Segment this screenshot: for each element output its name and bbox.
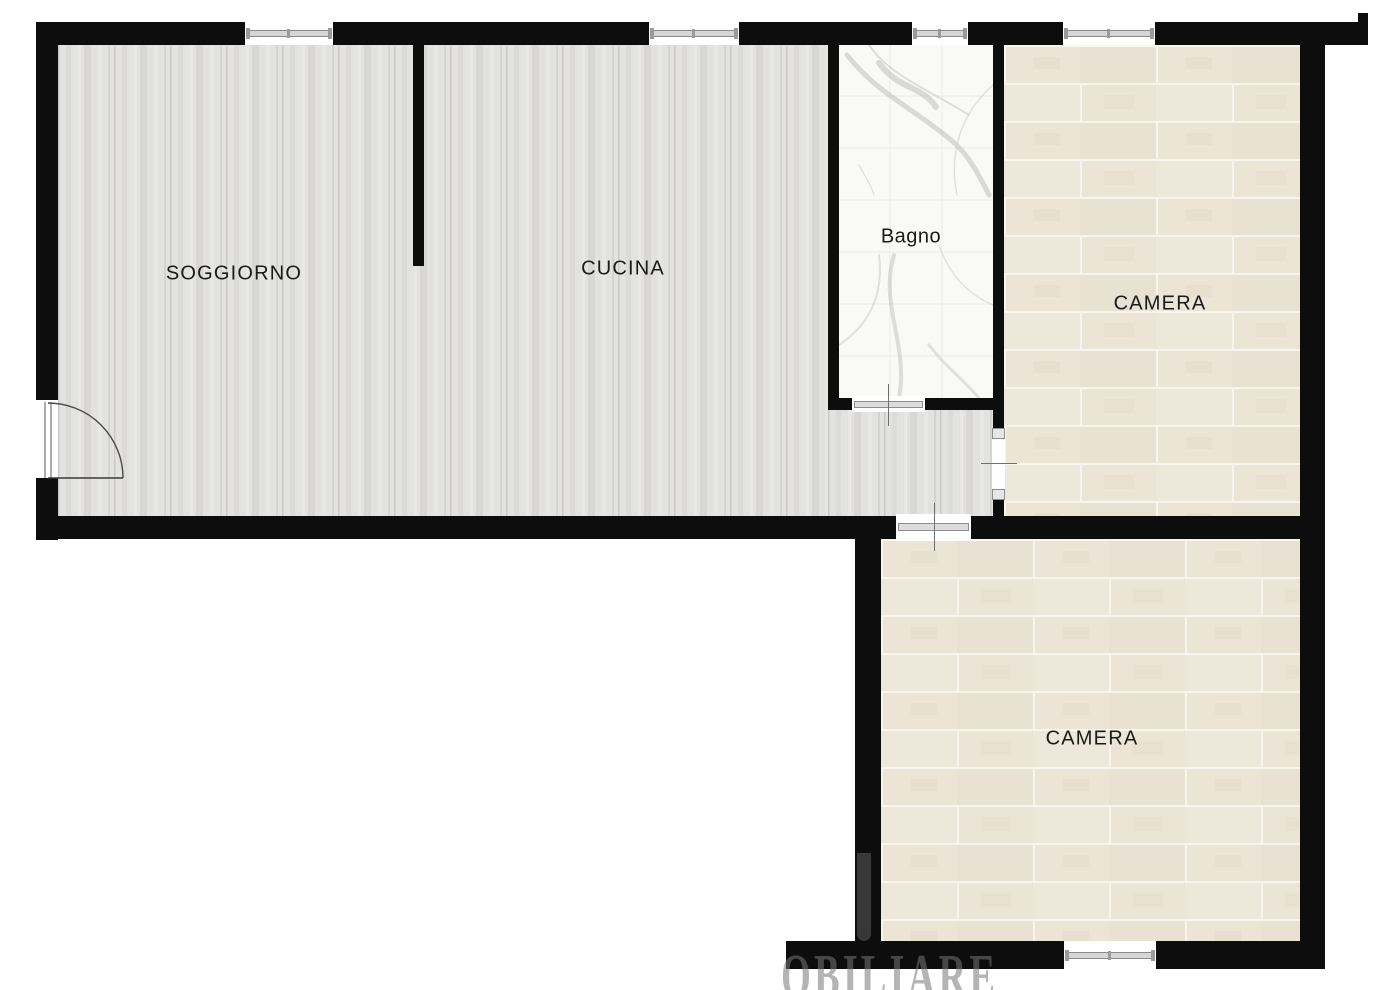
- room-label-cucina: CUCINA: [581, 258, 665, 281]
- watermark-letter-fragment: [857, 853, 871, 941]
- room-label-bagno: Bagno: [881, 226, 941, 249]
- wall-top-5: [1155, 22, 1368, 45]
- wall-top-4: [968, 22, 1063, 45]
- wall-top-2: [333, 22, 649, 45]
- camera-nord-door-track: [981, 463, 1017, 464]
- watermark-text: OBILIARE: [781, 946, 998, 990]
- window-jamb: [650, 28, 654, 39]
- wall-bathroom-left: [828, 45, 839, 410]
- camera-sud-door-track: [934, 503, 935, 551]
- wall-left-upper: [36, 22, 58, 400]
- window-cucina: [649, 22, 739, 45]
- window-jamb: [1064, 28, 1068, 39]
- window-mullion: [1108, 951, 1111, 960]
- window-soggiorno: [245, 22, 333, 45]
- room-label-camera-sud: CAMERA: [1046, 728, 1139, 751]
- window-jamb: [963, 28, 967, 39]
- window-jamb: [1150, 28, 1154, 39]
- room-label-camera-nord: CAMERA: [1114, 293, 1207, 316]
- window-jamb: [328, 28, 332, 39]
- wall-bathroom-right-lower: [993, 500, 1004, 516]
- floorplan-canvas: SOGGIORNO CUCINA Bagno CAMERA CAMERA OBI…: [0, 0, 1400, 990]
- window-mullion: [938, 29, 941, 38]
- wall-bottom-right: [1156, 941, 1325, 969]
- floor-marble-bathroom: [839, 45, 993, 398]
- door-jamb: [992, 489, 1005, 500]
- wall-top-corner-notch: [1358, 13, 1368, 23]
- door-jamb: [992, 428, 1005, 439]
- wall-right: [1300, 45, 1325, 969]
- wall-bathroom-bottom-right: [925, 398, 1003, 410]
- window-bagno: [912, 22, 968, 45]
- window-mullion: [287, 29, 290, 38]
- camera-nord-door-opening: [992, 428, 1005, 500]
- wall-partition-soggiorno-cucina: [413, 45, 424, 266]
- floor-wood-corridor: [828, 410, 993, 516]
- window-mullion: [1107, 29, 1110, 38]
- window-jamb: [246, 28, 250, 39]
- wall-bathroom-right-upper: [993, 45, 1004, 428]
- room-label-soggiorno: SOGGIORNO: [166, 263, 302, 286]
- wall-mid-horizontal-right: [971, 516, 1325, 539]
- entrance-door-icon: [36, 395, 136, 490]
- bathroom-door-track: [888, 384, 889, 426]
- wall-mid-horizontal-left: [36, 516, 896, 539]
- wall-top-1: [36, 22, 245, 45]
- window-camera-nord: [1063, 22, 1155, 45]
- window-jamb: [734, 28, 738, 39]
- wall-top-3: [739, 22, 912, 45]
- window-jamb: [1151, 950, 1155, 961]
- floor-tile-camera-nord: [1004, 45, 1300, 516]
- window-jamb: [1065, 950, 1069, 961]
- window-jamb: [913, 28, 917, 39]
- wall-bathroom-bottom-left: [828, 398, 852, 410]
- window-camera-sud: [1064, 941, 1156, 969]
- window-mullion: [692, 29, 695, 38]
